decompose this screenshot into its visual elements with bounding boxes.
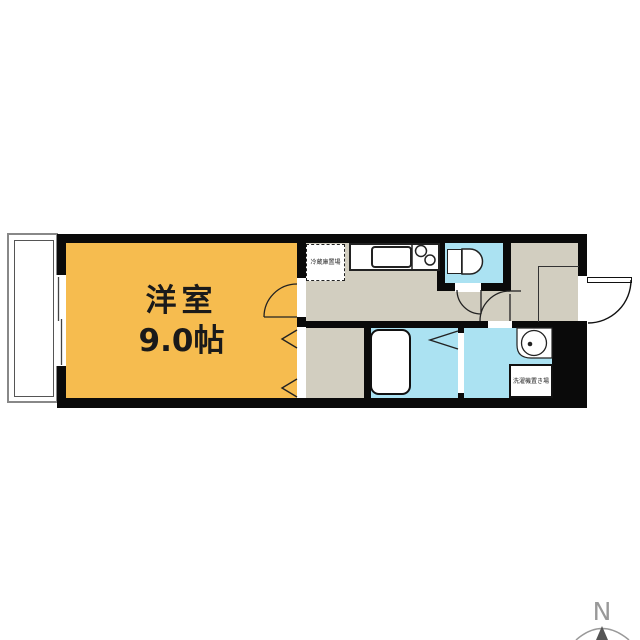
- toilet-door-opening: [455, 283, 481, 292]
- closet-opening: [297, 327, 306, 398]
- bath-washroom-divider: [458, 328, 464, 398]
- refrigerator-space-label: 冷蔵庫置場: [310, 259, 340, 266]
- wall-bottom: [57, 398, 587, 408]
- divider-stub-top: [458, 328, 464, 333]
- window-left: [55, 275, 66, 366]
- wall-top: [57, 234, 587, 243]
- compass-circle: [576, 629, 629, 640]
- entrance-door-leaf: [587, 277, 632, 283]
- wall-mass-entrance: [552, 321, 587, 398]
- entrance-door-opening: [578, 276, 587, 321]
- kitchen-sink: [371, 246, 412, 268]
- balcony-inner: [14, 240, 54, 397]
- room-name: 洋室: [146, 281, 218, 321]
- room-label: 洋室 9.0帖: [66, 243, 297, 398]
- divider-stub-bottom: [458, 393, 464, 398]
- washing-machine-space-label: 洗濯機置き場: [513, 378, 549, 385]
- refrigerator-space: 冷蔵庫置場: [306, 244, 345, 281]
- compass: [576, 626, 629, 640]
- compass-needle: [596, 626, 608, 640]
- washroom-door-opening: [488, 321, 512, 328]
- room-door-opening: [297, 278, 306, 317]
- entrance-door-arc: [588, 280, 631, 323]
- floorplan-canvas: 冷蔵庫置場 洗濯機置き場 洋室 9.0帖 N: [0, 0, 640, 640]
- bathtub: [370, 329, 411, 395]
- toilet-tank: [447, 249, 462, 274]
- compass-north-label: N: [589, 599, 615, 625]
- entrance-step: [538, 266, 579, 322]
- room-size: 9.0帖: [139, 321, 225, 361]
- closet-floor: [306, 328, 364, 398]
- washing-machine-space: 洗濯機置き場: [509, 364, 553, 398]
- wall-mid: [306, 321, 587, 328]
